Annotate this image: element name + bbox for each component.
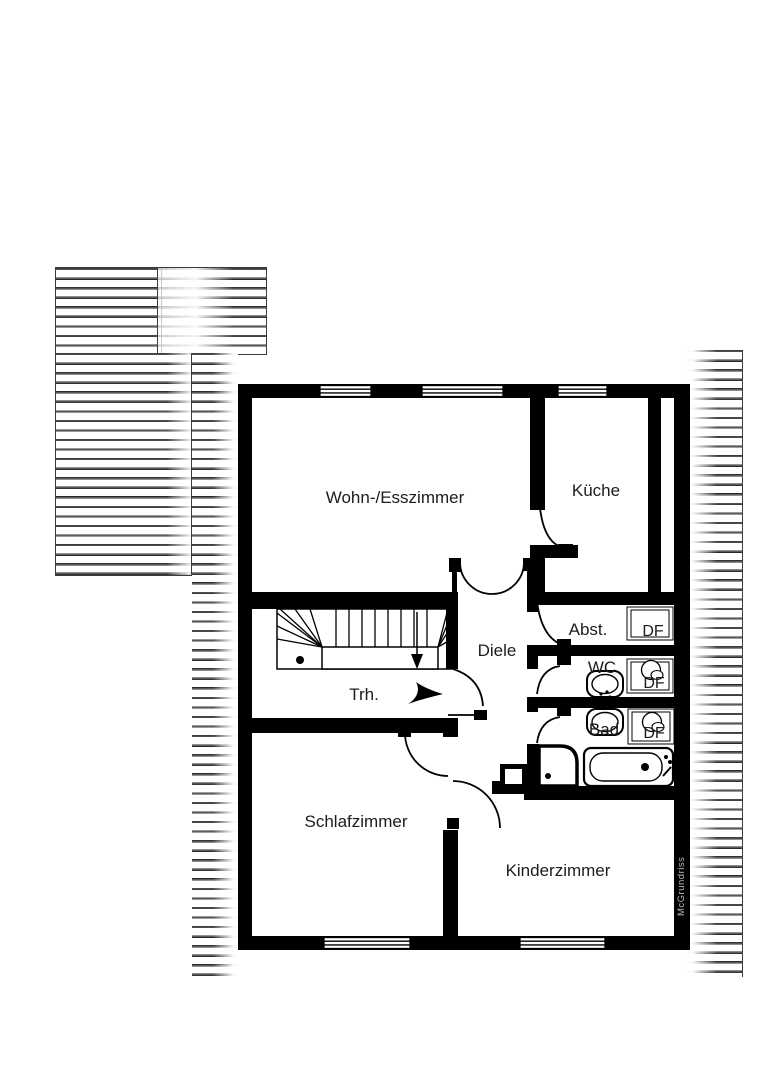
shower-icon bbox=[539, 746, 577, 786]
label-bedroom: Schlafzimmer bbox=[305, 812, 408, 831]
wall-bath-west bbox=[527, 744, 539, 793]
wall-hall-stub-2 bbox=[527, 697, 538, 712]
label-kitchen: Küche bbox=[572, 481, 620, 500]
wall-wc-bath bbox=[527, 697, 674, 708]
window-bottom-2 bbox=[520, 938, 605, 949]
label-hallway: Diele bbox=[478, 641, 517, 660]
window-top-2 bbox=[422, 386, 503, 397]
label-storage: Abst. bbox=[569, 620, 608, 639]
label-childrens-room: Kinderzimmer bbox=[506, 861, 611, 880]
wall-storage-wc bbox=[527, 645, 674, 656]
label-df-bath: DF bbox=[643, 725, 665, 742]
wall-kitchen-bottom bbox=[527, 592, 674, 605]
wall-bottom bbox=[238, 936, 690, 950]
wall-hall-stub-top bbox=[527, 605, 538, 612]
window-bottom-1 bbox=[324, 938, 410, 949]
label-stairwell: Trh. bbox=[349, 685, 379, 704]
wall-left bbox=[238, 384, 252, 950]
stair-walkline-start-dot bbox=[296, 656, 304, 664]
wall-living-bottom bbox=[238, 592, 458, 609]
wall-kitchen-right bbox=[648, 398, 661, 592]
chimney-flue bbox=[505, 769, 522, 784]
floor-plan-page: Wohn-/Esszimmer Küche Abst. WC Bad Diele… bbox=[0, 0, 763, 1080]
building-footprint bbox=[238, 384, 690, 950]
wall-living-kitchen bbox=[530, 398, 545, 510]
watermark-text: McGrundriss bbox=[676, 857, 687, 916]
wall-hall-stub-1 bbox=[527, 645, 538, 669]
label-bath: Bad bbox=[589, 720, 619, 739]
label-df-storage: DF bbox=[642, 623, 664, 640]
wall-bedroom-childroom bbox=[443, 830, 458, 936]
wall-bath-bottom bbox=[524, 786, 674, 800]
label-df-wc: DF bbox=[643, 675, 665, 692]
wall-corner-stub bbox=[443, 718, 458, 737]
window-top-3 bbox=[558, 386, 607, 397]
bathtub-icon bbox=[584, 748, 673, 786]
label-wc: WC bbox=[588, 658, 616, 677]
window-top-1 bbox=[320, 386, 371, 397]
label-living-dining: Wohn-/Esszimmer bbox=[326, 488, 465, 507]
wall-stairs-bottom bbox=[238, 718, 448, 733]
floor-plan-drawing: Wohn-/Esszimmer Küche Abst. WC Bad Diele… bbox=[0, 0, 763, 1080]
